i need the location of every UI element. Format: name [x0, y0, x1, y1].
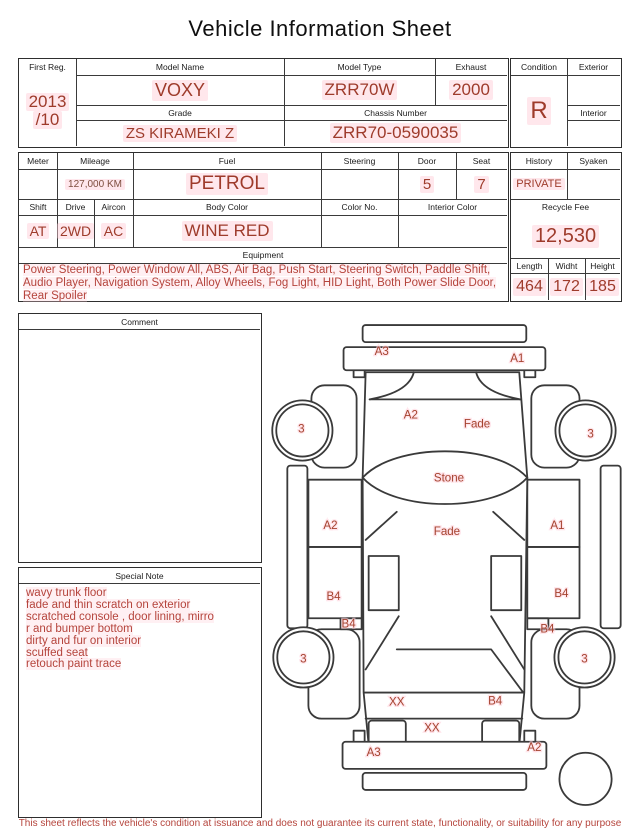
wheel-front-right — [555, 400, 615, 460]
damage-label-a1: A1 — [510, 353, 524, 365]
exterior-label: Exterior — [567, 59, 620, 75]
model-type-label: Model Type — [284, 59, 435, 75]
car-body-outline — [363, 372, 528, 745]
interior-label: Interior — [567, 105, 620, 120]
door-value: 5 — [398, 169, 456, 199]
body-color-label: Body Color — [133, 199, 321, 215]
special-note-label: Special Note — [19, 568, 260, 583]
damage-label-3: 3 — [298, 423, 304, 435]
syaken-value — [567, 169, 620, 199]
damage-label-3: 3 — [300, 653, 306, 665]
body-color-value: WINE RED — [133, 215, 321, 247]
door-panel-front-right — [527, 480, 579, 547]
equipment-label: Equipment — [19, 247, 507, 263]
color-no-label: Color No. — [321, 199, 398, 215]
comment-text — [25, 334, 255, 354]
interior-color-label: Interior Color — [398, 199, 507, 215]
condition-label: Condition — [511, 59, 567, 75]
damage-label-b4: B4 — [326, 591, 341, 603]
interior-color-value — [398, 215, 507, 247]
exhaust-value: 2000 — [435, 75, 507, 105]
fuel-label: Fuel — [133, 153, 321, 169]
footer-disclaimer: This sheet reflects the vehicle's condit… — [0, 818, 640, 829]
meter-label: Meter — [19, 153, 57, 169]
door-panel-front-left — [308, 480, 361, 547]
special-note-line: retouch paint trace — [26, 659, 258, 671]
equipment-text: Power Steering, Power Window All, ABS, A… — [23, 264, 506, 302]
special-note-box: Special Note wavy trunk floorfade and th… — [18, 567, 262, 818]
exterior-value — [567, 75, 620, 105]
mileage-label: Mileage — [57, 153, 133, 169]
interior-value — [567, 120, 620, 146]
special-note-lines: wavy trunk floorfade and thin scratch on… — [26, 588, 258, 671]
fuel-value: PETROL — [133, 169, 321, 199]
recycle-fee-label: Recycle Fee — [511, 199, 620, 214]
door-label: Door — [398, 153, 456, 169]
grade-label: Grade — [76, 105, 284, 120]
history-value: PRIVATE — [511, 169, 567, 199]
color-no-value — [321, 215, 398, 247]
first-reg-label: First Reg. — [19, 59, 76, 75]
special-note-line: scratched console , door lining, mirro — [26, 612, 258, 624]
spec-table: Meter Mileage 127,000 KM Fuel PETROL Ste… — [18, 152, 509, 302]
drive-label: Drive — [57, 199, 94, 215]
sill-right — [601, 466, 621, 629]
damage-label-a2: A2 — [404, 409, 418, 421]
history-label: History — [511, 153, 567, 169]
damage-label-b4: B4 — [488, 696, 503, 708]
recycle-fee-value: 12,530 — [511, 214, 620, 258]
damage-label-a3: A3 — [375, 346, 389, 358]
seat-value: 7 — [456, 169, 507, 199]
shift-value: AT — [19, 215, 57, 247]
damage-label-a2: A2 — [323, 520, 337, 532]
meter-value — [19, 169, 57, 199]
grade-value: ZS KIRAMEKI Z — [76, 120, 284, 146]
shift-label: Shift — [19, 199, 57, 215]
damage-label-xx: XX — [389, 697, 405, 709]
special-note-line: dirty and fur on interior — [26, 636, 258, 648]
condition-box: Condition R Exterior Interior — [510, 58, 622, 148]
drive-value: 2WD — [57, 215, 94, 247]
car-damage-diagram: A3A1A2FadeStoneA2FadeA1B4B4B4B43333XXB4X… — [268, 315, 640, 807]
vehicle-information-sheet: Vehicle Information Sheet First Reg. 201… — [0, 0, 640, 835]
damage-label-fade: Fade — [464, 418, 490, 430]
seat-label: Seat — [456, 153, 507, 169]
length-value: 464 — [511, 273, 548, 300]
door-panel-rear-right — [527, 547, 579, 618]
sill-left — [287, 466, 307, 629]
steering-value — [321, 169, 398, 199]
front-top-strip — [363, 325, 527, 342]
page-title: Vehicle Information Sheet — [0, 16, 640, 42]
special-note-line: r and bumper bottom — [26, 624, 258, 636]
comment-label: Comment — [19, 314, 260, 329]
damage-label-3: 3 — [587, 428, 593, 440]
chassis-number-value: ZRR70-0590035 — [284, 120, 507, 146]
first-reg-value: 2013 /10 — [19, 75, 76, 146]
damage-label-3: 3 — [581, 653, 587, 665]
comment-box: Comment — [18, 313, 262, 563]
damage-label-fade: Fade — [434, 526, 460, 538]
damage-label-a3: A3 — [367, 747, 381, 759]
aircon-value: AC — [94, 215, 133, 247]
widht-label: Widht — [548, 258, 585, 273]
length-label: Length — [511, 258, 548, 273]
damage-label-xx: XX — [424, 723, 440, 735]
mileage-value: 127,000 KM — [57, 169, 133, 199]
height-value: 185 — [585, 273, 620, 300]
damage-label-stone: Stone — [434, 473, 464, 485]
condition-value: R — [511, 75, 567, 146]
syaken-label: Syaken — [567, 153, 620, 169]
rear-bottom-strip — [363, 773, 527, 790]
model-name-value: VOXY — [76, 75, 284, 105]
damage-label-a2: A2 — [527, 742, 541, 754]
spare-tire — [559, 753, 611, 805]
model-name-label: Model Name — [76, 59, 284, 75]
height-label: Height — [585, 258, 620, 273]
damage-label-a1: A1 — [550, 520, 564, 532]
damage-label-b4: B4 — [554, 588, 569, 600]
model-type-value: ZRR70W — [284, 75, 435, 105]
history-box: History PRIVATE Syaken Recycle Fee 12,53… — [510, 152, 622, 302]
widht-value: 172 — [548, 273, 585, 300]
chassis-number-label: Chassis Number — [284, 105, 507, 120]
steering-label: Steering — [321, 153, 398, 169]
door-panel-rear-left — [308, 547, 361, 618]
damage-label-b4: B4 — [540, 623, 555, 635]
exhaust-label: Exhaust — [435, 59, 507, 75]
aircon-label: Aircon — [94, 199, 133, 215]
registration-table: First Reg. 2013 /10 Model Name VOXY Mode… — [18, 58, 509, 148]
damage-label-b4: B4 — [342, 618, 357, 630]
